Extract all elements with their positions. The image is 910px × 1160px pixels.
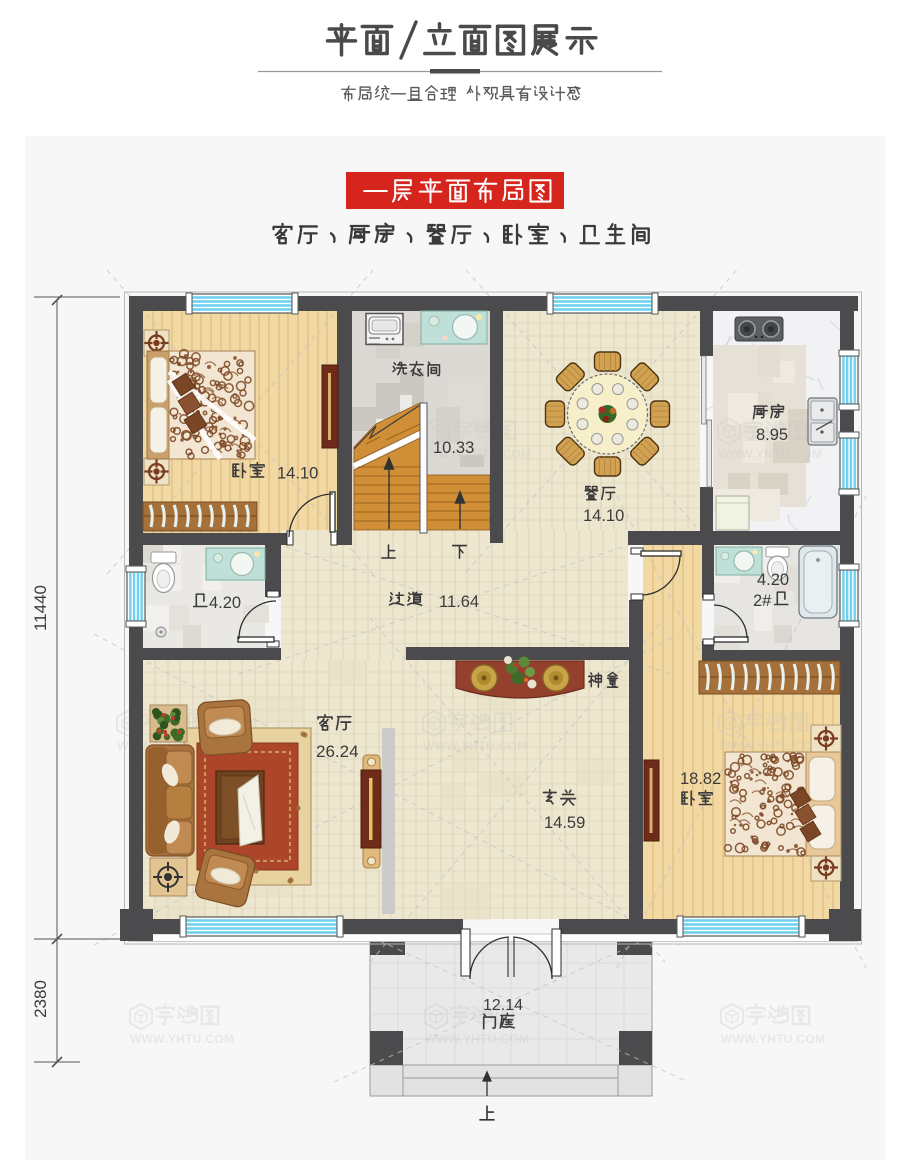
svg-text:11.64: 11.64 xyxy=(439,593,479,611)
svg-text:4.20: 4.20 xyxy=(209,594,241,612)
svg-text:2380: 2380 xyxy=(31,980,50,1018)
svg-text:12.14: 12.14 xyxy=(483,997,523,1014)
svg-text:2#: 2# xyxy=(753,592,772,610)
svg-text:4.20: 4.20 xyxy=(757,571,789,589)
svg-text:14.10: 14.10 xyxy=(277,465,318,483)
svg-text:18.82: 18.82 xyxy=(680,770,721,788)
svg-text:26.24: 26.24 xyxy=(316,742,359,761)
svg-text:10.33: 10.33 xyxy=(433,439,474,457)
svg-text:8.95: 8.95 xyxy=(756,426,788,444)
svg-text:14.59: 14.59 xyxy=(544,814,585,832)
svg-text:14.10: 14.10 xyxy=(583,507,624,525)
svg-text:11440: 11440 xyxy=(31,585,50,631)
